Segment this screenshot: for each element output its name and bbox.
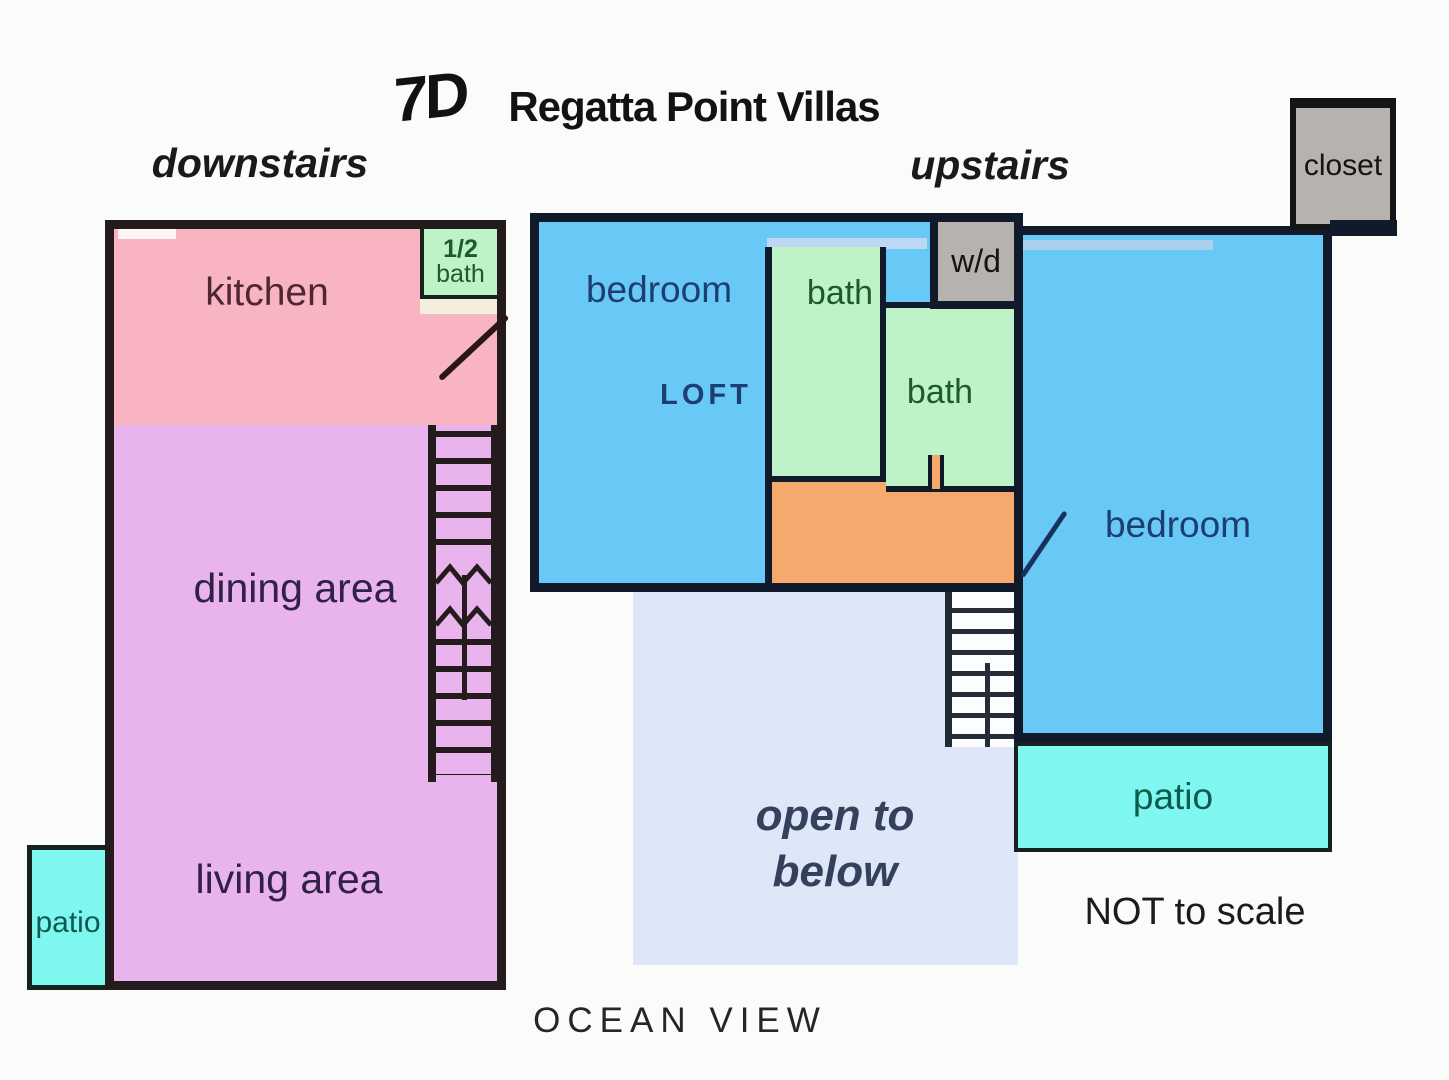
stair-treads-upper (436, 431, 491, 563)
dining-area-label: dining area (185, 566, 405, 611)
open-to-below-label-line1: open to (700, 792, 970, 840)
unit-number: 7D (390, 60, 470, 137)
living-area-label: living area (179, 857, 399, 902)
half-bath-label-bottom: bath (436, 262, 485, 287)
kitchen-window-notch (118, 229, 176, 239)
bath-door-opening (928, 455, 944, 489)
floor-plan-canvas: 7D Regatta Point Villas downstairs upsta… (0, 0, 1449, 1080)
bedroom-right-label: bedroom (1078, 505, 1278, 546)
bath-lower-label: bath (880, 374, 1000, 411)
washer-dryer-label: w/d (951, 243, 1001, 280)
staircase-down (428, 425, 499, 782)
bedroom-left-label: bedroom (559, 270, 759, 311)
upstairs-label: upstairs (890, 143, 1090, 188)
stair-treads (952, 587, 1014, 745)
bath-upper-label: bath (780, 275, 900, 312)
half-bath-label-top: 1/2 (443, 237, 478, 262)
stair-treads-lower (436, 639, 491, 775)
half-bath-threshold (420, 299, 497, 314)
ocean-view-note: OCEAN VIEW (468, 1002, 892, 1041)
patio-upstairs-label: patio (1133, 776, 1213, 818)
stair-rail-centerline-up (985, 663, 990, 747)
half-bath-room: 1/2 bath (420, 229, 497, 299)
wall-highlight-strip-2 (1023, 240, 1213, 250)
hallway-area (765, 482, 1014, 583)
closet-room: closet (1290, 98, 1396, 230)
washer-dryer-closet: w/d (930, 222, 1014, 309)
loft-label: LOFT (646, 380, 766, 412)
patio-upstairs-room: patio (1014, 742, 1332, 852)
wall-segment (1330, 220, 1397, 236)
staircase-up (945, 585, 1014, 747)
downstairs-label: downstairs (150, 141, 370, 186)
not-to-scale-note: NOT to scale (1045, 892, 1345, 934)
open-to-below-label-line2: below (700, 848, 970, 896)
kitchen-label: kitchen (157, 272, 377, 315)
patio-downstairs-label: patio (27, 906, 109, 939)
bedroom-right-room (1014, 226, 1332, 742)
page-title: Regatta Point Villas (484, 84, 904, 130)
closet-label: closet (1304, 149, 1382, 183)
